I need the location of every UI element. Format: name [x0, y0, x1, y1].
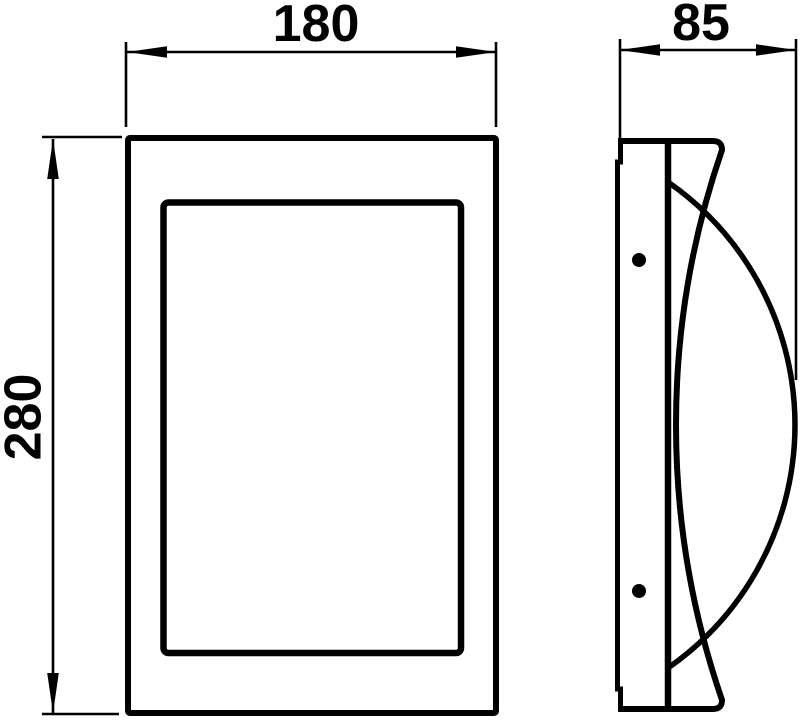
height-arrowhead-top: [47, 139, 59, 179]
height-dimension-value: 280: [0, 374, 53, 461]
screw-hole-bottom: [632, 584, 646, 598]
dimension-width: 180: [126, 0, 496, 127]
width-arrowhead-left: [127, 46, 167, 58]
side-view: [618, 139, 795, 711]
drawing-canvas: 180 280 85: [0, 0, 800, 721]
dimension-height: 280: [0, 137, 122, 714]
screw-hole-top: [632, 253, 646, 267]
width-dimension-value: 180: [273, 0, 360, 53]
width-arrowhead-right: [456, 46, 496, 58]
depth-arrowhead-right: [756, 44, 796, 56]
side-backplate-wall-edge: [618, 139, 621, 711]
technical-drawing: 180 280 85: [0, 0, 800, 721]
depth-dimension-value: 85: [672, 0, 730, 52]
front-view: [128, 138, 496, 713]
front-inner-panel: [164, 203, 462, 654]
front-outer-outline: [128, 138, 496, 713]
height-arrowhead-bottom: [47, 673, 59, 713]
depth-arrowhead-left: [620, 44, 660, 56]
